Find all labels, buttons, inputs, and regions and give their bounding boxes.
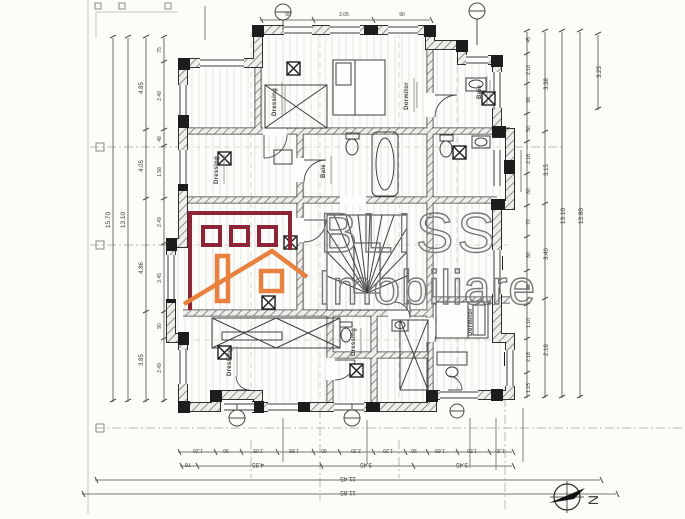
dim-label: 11.45 (340, 475, 356, 482)
bed-top (333, 60, 385, 115)
dim-label: 50 (526, 126, 532, 132)
dim-label: 1.20 (193, 447, 203, 453)
dim-label: 4.35 (252, 461, 264, 467)
dimension-labels-right: 45 2.10 90 50 2.16 60 70 80 1.28 1.10 2.… (526, 37, 603, 393)
room-label-mid-left: Dressing (214, 156, 220, 184)
dim-label: 70 (526, 219, 532, 225)
dimension-labels-left: 15.70 13.10 4.85 4.05 4.86 3.85 75 2.48 … (105, 47, 163, 373)
dim-label: 2.18 (526, 352, 532, 362)
dim-label: 45 (526, 37, 532, 43)
dim-label: 2.49 (157, 363, 163, 373)
axis-markers-left (96, 143, 104, 432)
dim-label: 15.70 (105, 211, 112, 228)
dim-label: 1.98 (157, 167, 163, 177)
scanned-floor-plan-sheet: Dressing Dormitor Baie Dressing Baie Dre… (0, 0, 685, 514)
room-label-bottom-left: Dressing (227, 348, 233, 376)
dim-label: 2.10 (526, 65, 532, 75)
dim-label: 90 (157, 323, 163, 329)
watermark-brand: BLISS (320, 201, 499, 264)
floor-plan-canvas: Dressing Dormitor Baie Dressing Baie Dre… (0, 0, 685, 514)
dim-label: 1.50 (467, 447, 477, 453)
room-label-top-right: Baie (477, 85, 483, 99)
dim-label: 4.05 (139, 160, 145, 172)
dim-label: 90 (411, 447, 417, 453)
dim-label: 3.45 (360, 461, 372, 467)
room-label-top-left: Dressing (272, 88, 278, 116)
dim-label: 1.65 (435, 447, 445, 453)
north-compass: N (549, 481, 601, 513)
dim-label: 13.80 (578, 207, 585, 224)
dim-label: 90 (285, 12, 291, 18)
dim-label: 13.10 (120, 211, 127, 228)
watermark-brand-sub: Imobiliare (318, 262, 536, 315)
dim-label: 3.23 (597, 66, 603, 78)
dimension-labels-bottom: 1.20 90 2.05 1.65 90 2.30 1.20 90 1.65 1… (185, 447, 505, 496)
dim-label: 3.38 (544, 78, 550, 90)
dim-label: 1.15 (526, 383, 532, 393)
dimension-labels-top: 90 2.05 90 (285, 12, 405, 18)
dim-label: 2.16 (544, 344, 550, 356)
dim-label: 11.85 (340, 489, 356, 496)
dim-label: 2.05 (339, 12, 349, 18)
dim-label: 78 (185, 461, 191, 467)
room-label-bottom-center: Dressing (351, 328, 357, 356)
dim-label: 48 (157, 136, 163, 142)
dim-label: 60 (526, 188, 532, 194)
dim-label: 3.40 (544, 248, 550, 260)
north-label: N (585, 495, 601, 505)
dim-label: 90 (223, 447, 229, 453)
dim-label: 1.20 (383, 447, 393, 453)
dim-label: 2.05 (253, 447, 263, 453)
dim-label: 75 (157, 47, 163, 53)
dim-label: 4.85 (139, 82, 145, 94)
dim-label: 3.45 (456, 461, 468, 467)
dim-label: 3.85 (139, 354, 145, 366)
room-label-mid-center: Baie (321, 164, 327, 178)
dim-label: 3.15 (544, 164, 550, 176)
dim-label: 2.16 (526, 154, 532, 164)
dim-label: 90 (526, 97, 532, 103)
dim-label: 13.10 (560, 207, 567, 224)
scan-artifacts (88, 0, 178, 514)
dim-label: 2.49 (157, 217, 163, 227)
dim-label: 2.48 (157, 91, 163, 101)
dim-label: 80 (526, 252, 532, 258)
dim-label: 90 (321, 447, 327, 453)
room-label-top-center: Dormitor (404, 82, 410, 110)
dim-label: 4.86 (139, 262, 145, 274)
dim-label: 3.45 (157, 273, 163, 283)
dim-label: 2.30 (351, 447, 361, 453)
dim-label: 90 (399, 12, 405, 18)
dim-label: 1.10 (526, 318, 532, 328)
dim-label: 1.65 (289, 447, 299, 453)
